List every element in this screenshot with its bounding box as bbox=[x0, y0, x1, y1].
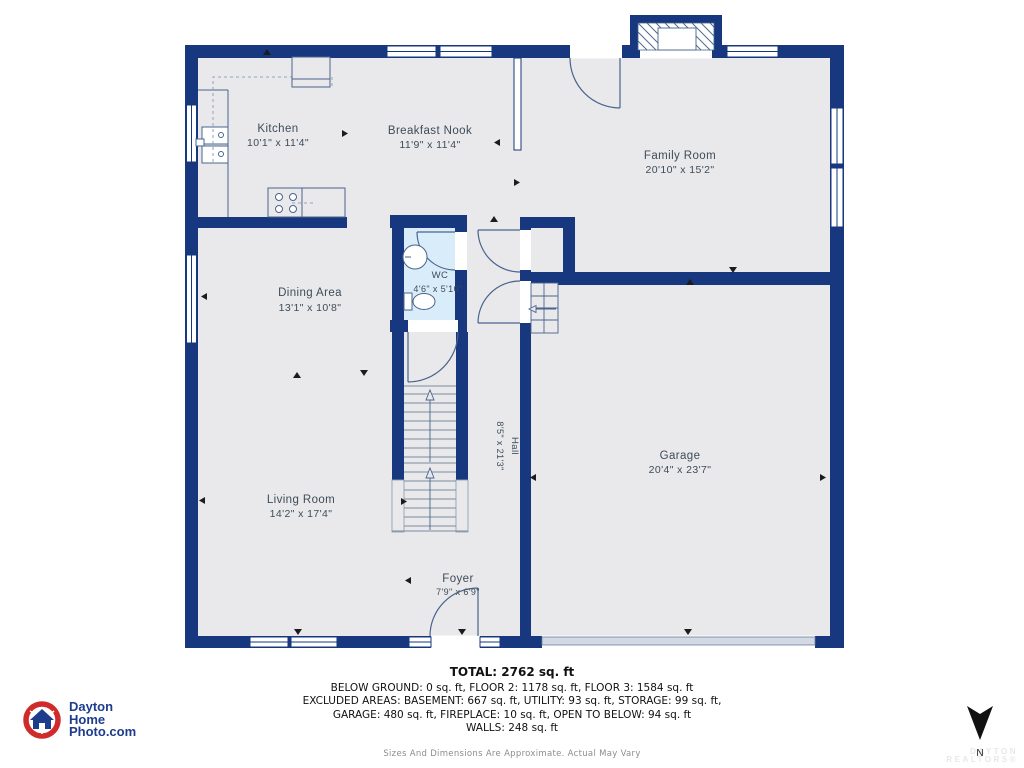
summary-line4: WALLS: 248 sq. ft bbox=[0, 722, 1024, 736]
garage-dims: 20'4" x 23'7" bbox=[649, 464, 712, 476]
watermark: DAYTON REALTORS® bbox=[946, 748, 1018, 764]
floorplan-svg: Kitchen 10'1" x 11'4" Breakfast Nook 11'… bbox=[0, 0, 1024, 768]
dining-area-label: Dining Area bbox=[278, 287, 342, 299]
living-room-label: Living Room bbox=[267, 494, 335, 506]
logo-line3: Photo.com bbox=[69, 726, 136, 739]
wc-label: WC bbox=[432, 270, 449, 281]
watermark-line2: REALTORS® bbox=[946, 756, 1018, 764]
floorplan-page: Kitchen 10'1" x 11'4" Breakfast Nook 11'… bbox=[0, 0, 1024, 768]
breakfast-nook-dims: 11'9" x 11'4" bbox=[399, 139, 460, 151]
dining-area-dims: 13'1" x 10'8" bbox=[279, 302, 342, 314]
foyer-label: Foyer bbox=[442, 573, 473, 585]
area-summary: TOTAL: 2762 sq. ft BELOW GROUND: 0 sq. f… bbox=[0, 666, 1024, 761]
hall-label: Hall bbox=[509, 437, 520, 455]
north-arrow-icon bbox=[957, 703, 1003, 743]
hearth bbox=[658, 28, 696, 50]
window bbox=[831, 108, 843, 164]
foyer-dims: 7'9" x 6'9" bbox=[436, 587, 480, 597]
toilet bbox=[404, 293, 435, 310]
window bbox=[387, 46, 436, 57]
garage-steps bbox=[529, 283, 558, 333]
stairs-right-wall bbox=[456, 332, 468, 480]
family-room-label: Family Room bbox=[644, 150, 716, 162]
summary-disclaimer: Sizes And Dimensions Are Approximate. Ac… bbox=[0, 748, 1024, 762]
family-room-dims: 20'10" x 15'2" bbox=[645, 164, 714, 176]
closet-right-wall bbox=[563, 217, 575, 277]
wc-stairs-left-wall bbox=[392, 215, 404, 480]
window bbox=[250, 637, 288, 647]
window bbox=[480, 637, 500, 647]
window bbox=[291, 637, 337, 647]
hall-dims: 8'5" x 21'3" bbox=[495, 421, 505, 470]
kitchen-dims: 10'1" x 11'4" bbox=[247, 137, 309, 149]
living-room-dims: 14'2" x 17'4" bbox=[270, 508, 333, 520]
camera-house-logo-icon bbox=[20, 698, 64, 742]
window bbox=[187, 255, 197, 343]
pantry-closet bbox=[292, 57, 330, 87]
summary-total: TOTAL: 2762 sq. ft bbox=[0, 666, 1024, 680]
logo: Dayton Home Photo.com bbox=[20, 698, 136, 742]
nook-stub-wall bbox=[514, 58, 521, 150]
window bbox=[409, 637, 431, 647]
kitchen-dining-wall bbox=[185, 217, 347, 228]
window bbox=[831, 168, 843, 227]
breakfast-nook-label: Breakfast Nook bbox=[388, 125, 472, 137]
window bbox=[440, 46, 492, 57]
logo-text: Dayton Home Photo.com bbox=[69, 701, 136, 739]
garage-label: Garage bbox=[660, 450, 701, 462]
wc-dims: 4'6" x 5'10" bbox=[413, 284, 462, 294]
summary-line3: GARAGE: 480 sq. ft, FIREPLACE: 10 sq. ft… bbox=[0, 709, 1024, 723]
window bbox=[727, 46, 778, 57]
garage-door bbox=[542, 637, 815, 645]
summary-line1: BELOW GROUND: 0 sq. ft, FLOOR 2: 1178 sq… bbox=[0, 682, 1024, 696]
kitchen-label: Kitchen bbox=[257, 123, 298, 135]
summary-line2: EXCLUDED AREAS: BASEMENT: 667 sq. ft, UT… bbox=[0, 695, 1024, 709]
window bbox=[187, 105, 197, 162]
